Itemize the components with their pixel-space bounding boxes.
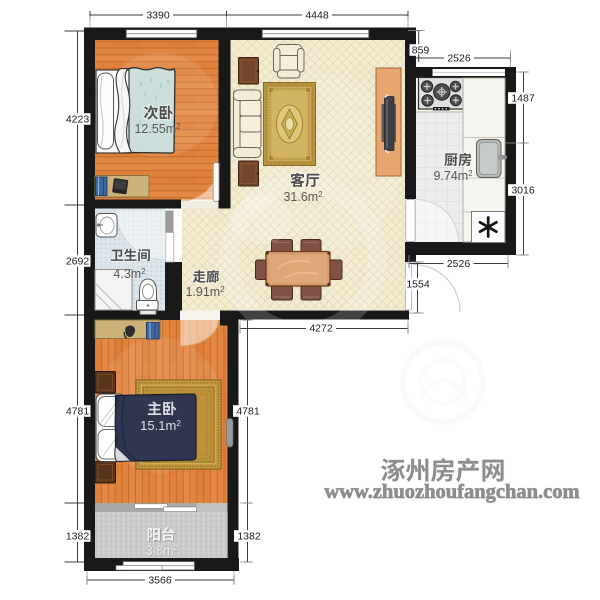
svg-text:3016: 3016 [511,185,535,197]
svg-text:15.1m2: 15.1m2 [140,418,181,433]
svg-text:3566: 3566 [148,575,172,587]
svg-text:12.55m2: 12.55m2 [134,122,180,136]
svg-text:4272: 4272 [309,323,333,335]
svg-text:www.zhuozhoufangchan.com: www.zhuozhoufangchan.com [324,481,579,503]
svg-text:3390: 3390 [146,10,170,22]
svg-text:3.8m2: 3.8m2 [146,544,178,558]
svg-text:4448: 4448 [305,10,329,22]
svg-text:31.6m2: 31.6m2 [283,190,322,204]
svg-text:2692: 2692 [66,256,90,268]
svg-text:1382: 1382 [237,531,261,543]
svg-text:1.91m2: 1.91m2 [185,285,224,299]
svg-text:4781: 4781 [236,406,260,418]
svg-text:1487: 1487 [511,93,535,105]
svg-text:4781: 4781 [66,406,90,418]
svg-text:4.3m2: 4.3m2 [113,267,145,281]
svg-text:4223: 4223 [66,114,90,126]
svg-text:1554: 1554 [406,279,430,291]
svg-text:1382: 1382 [66,531,90,543]
svg-text:9.74m2: 9.74m2 [433,169,472,183]
svg-text:2526: 2526 [447,258,471,270]
svg-text:2526: 2526 [447,53,471,65]
svg-text:859: 859 [412,45,430,57]
